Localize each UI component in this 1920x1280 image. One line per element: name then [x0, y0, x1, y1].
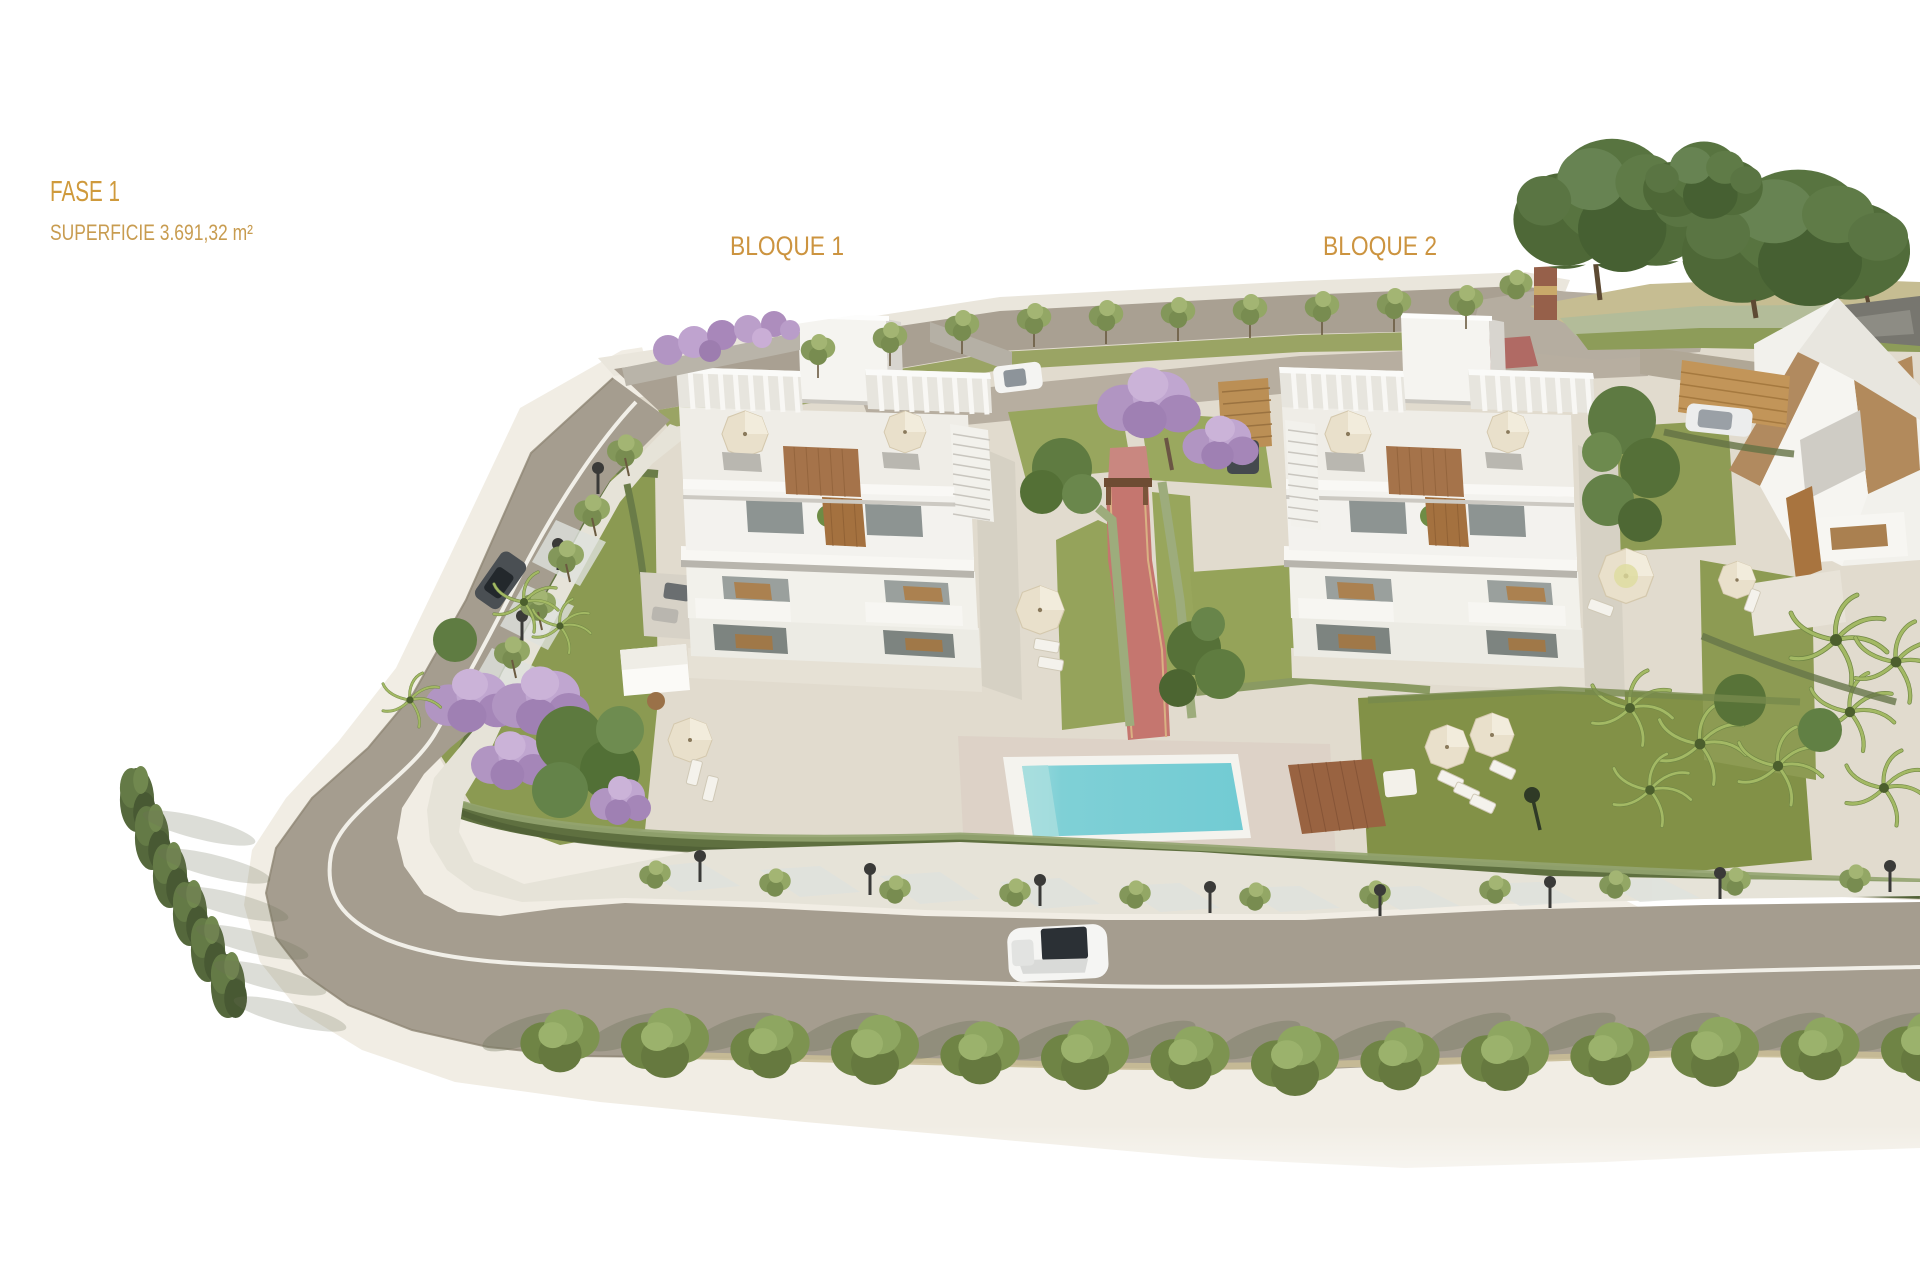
- svg-text:FASE 1: FASE 1: [50, 176, 120, 208]
- svg-text:BLOQUE 1: BLOQUE 1: [730, 231, 844, 261]
- svg-text:BLOQUE 2: BLOQUE 2: [1323, 231, 1437, 261]
- svg-text:SUPERFICIE 3.691,32 m²: SUPERFICIE 3.691,32 m²: [50, 220, 253, 245]
